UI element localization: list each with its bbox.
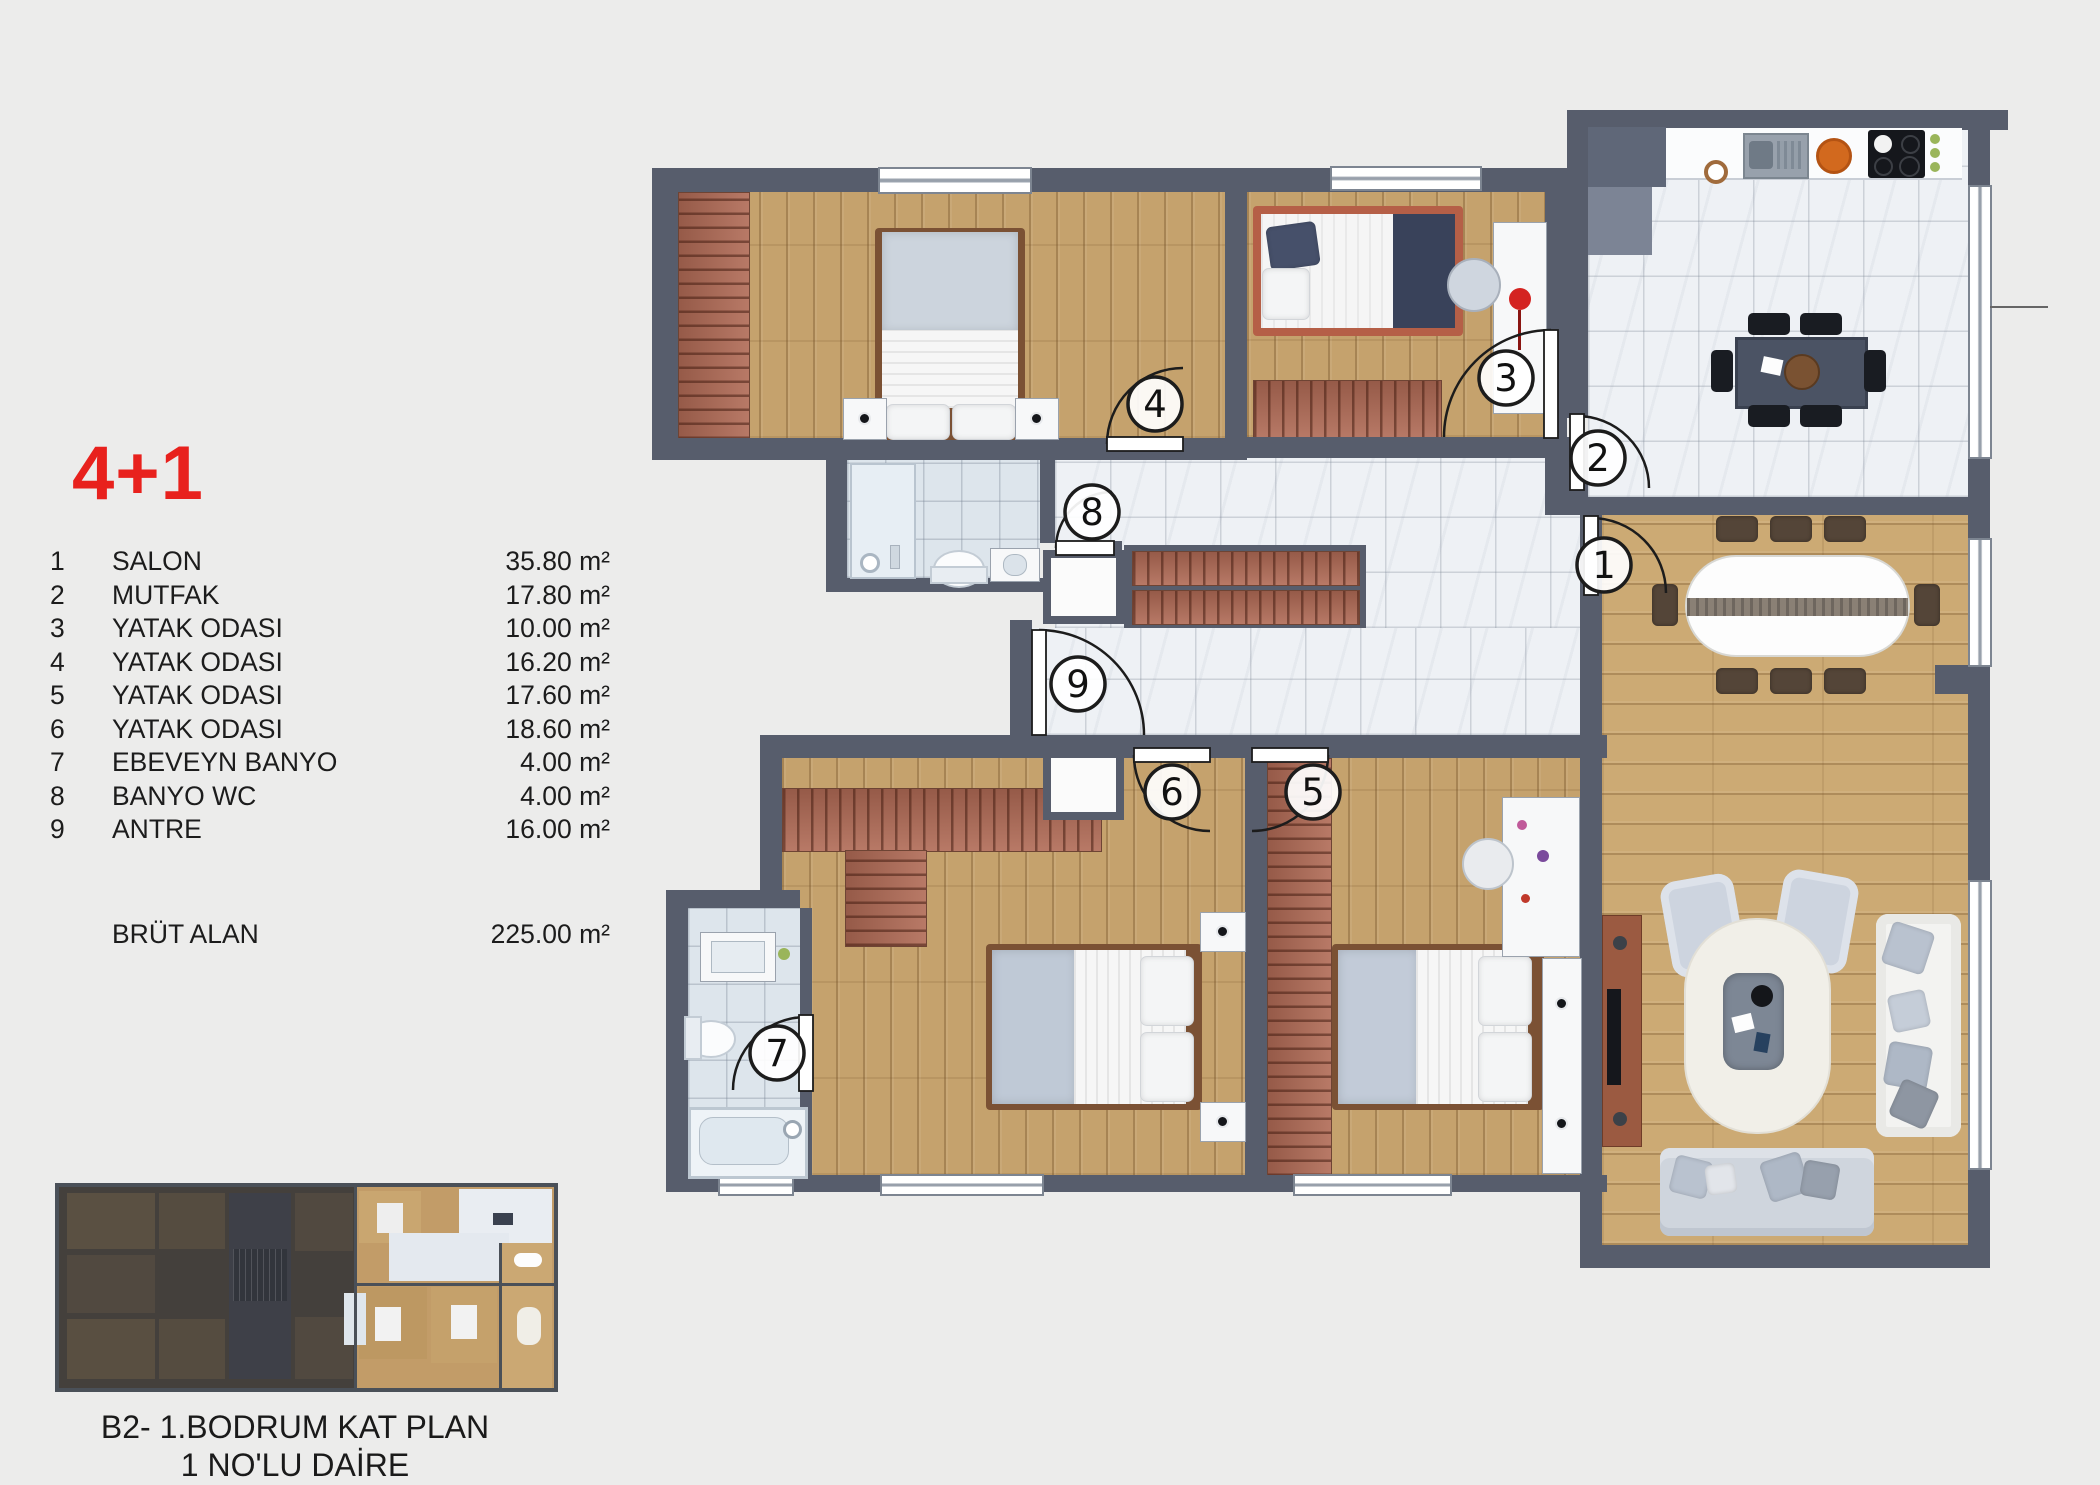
door-number-5: 5 xyxy=(1301,771,1325,814)
thumb-bed xyxy=(451,1305,477,1339)
thumb-wall xyxy=(354,1283,554,1286)
building-overview-thumbnail xyxy=(55,1183,558,1392)
door-number-1: 1 xyxy=(1592,544,1616,587)
thumb-bed xyxy=(375,1307,401,1341)
door-number-9: 9 xyxy=(1066,663,1090,706)
thumb-rug xyxy=(517,1307,541,1345)
door-leaf xyxy=(1544,330,1558,438)
thumb-dim-overlay xyxy=(59,1187,354,1388)
thumb-kitchen-table xyxy=(493,1213,513,1225)
door-leaf xyxy=(1056,541,1114,555)
door-number-2: 2 xyxy=(1586,437,1610,480)
thumb-bed xyxy=(377,1203,403,1233)
door-leaves xyxy=(799,330,1598,1091)
thumb-wall xyxy=(354,1187,357,1388)
door-number-circles: 1 2 3 4 5 6 7 8 9 xyxy=(750,351,1631,1080)
thumb-wall xyxy=(499,1243,502,1388)
door-leaf xyxy=(1032,630,1046,735)
door-leaf xyxy=(1134,748,1210,762)
door-number-4: 4 xyxy=(1143,383,1167,426)
door-number-7: 7 xyxy=(765,1032,789,1075)
door-arcs xyxy=(733,330,1666,1090)
door-number-3: 3 xyxy=(1494,357,1518,400)
door-leaf xyxy=(1252,748,1328,762)
door-leaf xyxy=(1107,437,1183,451)
page: 4+1 1 SALON 35.80 m² 2 MUTFAK 17.80 m² 3… xyxy=(0,0,2100,1485)
door-number-8: 8 xyxy=(1080,491,1104,534)
door-number-6: 6 xyxy=(1160,771,1184,814)
thumb-table xyxy=(514,1253,542,1267)
thumb-hall xyxy=(389,1233,509,1281)
